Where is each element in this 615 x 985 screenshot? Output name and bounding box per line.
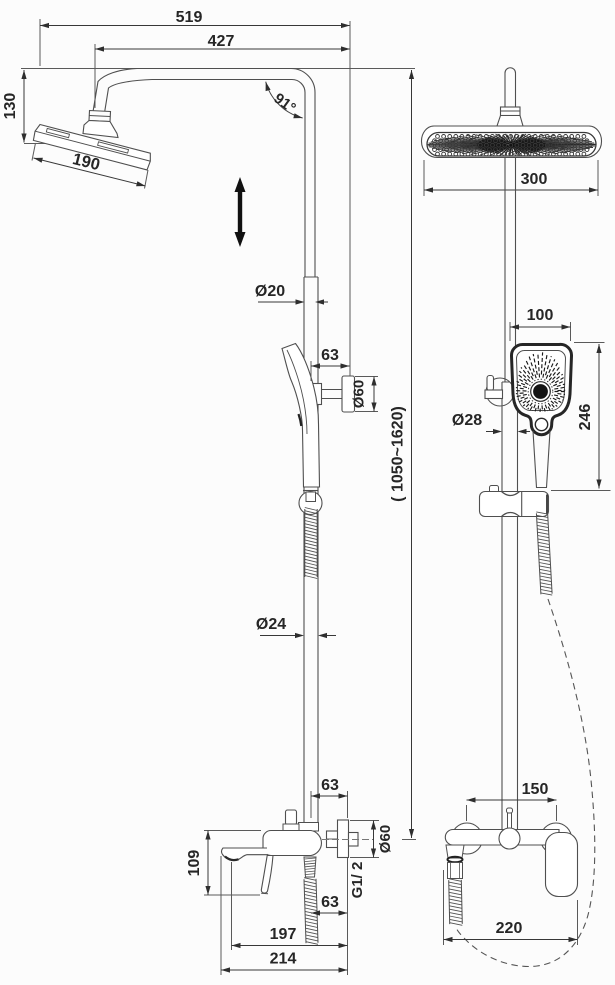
svg-text:109: 109 xyxy=(186,850,203,877)
svg-text:246: 246 xyxy=(577,404,594,431)
svg-text:G1/ 2: G1/ 2 xyxy=(349,862,366,899)
svg-text:214: 214 xyxy=(270,951,297,968)
svg-text:Ø60: Ø60 xyxy=(351,380,368,408)
svg-text:427: 427 xyxy=(208,33,235,50)
svg-text:63: 63 xyxy=(321,347,339,364)
svg-text:Ø28: Ø28 xyxy=(452,412,482,429)
svg-text:63: 63 xyxy=(321,894,339,911)
svg-text:220: 220 xyxy=(496,920,523,937)
svg-text:519: 519 xyxy=(176,9,203,26)
svg-text:300: 300 xyxy=(521,171,548,188)
svg-text:100: 100 xyxy=(527,307,554,324)
svg-text:( 1050~1620): ( 1050~1620) xyxy=(390,406,407,502)
svg-text:197: 197 xyxy=(270,926,297,943)
svg-text:Ø20: Ø20 xyxy=(255,283,285,300)
svg-text:150: 150 xyxy=(522,781,549,798)
svg-text:130: 130 xyxy=(2,93,19,120)
svg-text:Ø60: Ø60 xyxy=(377,825,394,853)
svg-text:Ø24: Ø24 xyxy=(256,616,286,633)
svg-text:63: 63 xyxy=(321,777,339,794)
